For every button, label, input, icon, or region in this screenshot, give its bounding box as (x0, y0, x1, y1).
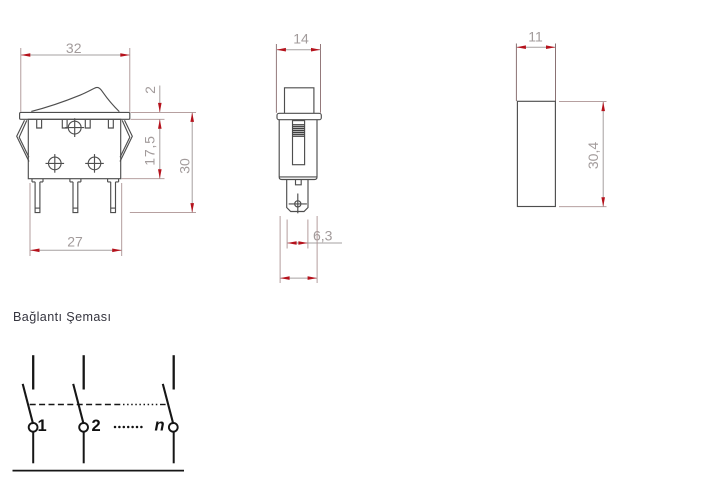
svg-text:1: 1 (38, 417, 47, 435)
svg-text:17,5: 17,5 (142, 135, 158, 165)
svg-text:14: 14 (293, 31, 309, 47)
svg-text:11: 11 (528, 29, 543, 45)
svg-text:2: 2 (142, 86, 158, 94)
svg-text:27: 27 (67, 234, 83, 250)
svg-text:Bağlantı Şeması: Bağlantı Şeması (13, 310, 111, 324)
svg-text:6,3: 6,3 (313, 228, 333, 244)
svg-text:32: 32 (66, 40, 82, 56)
svg-text:2: 2 (92, 417, 101, 435)
svg-text:n: n (155, 417, 165, 435)
svg-text:30: 30 (177, 158, 193, 174)
svg-text:30,4: 30,4 (585, 142, 601, 169)
